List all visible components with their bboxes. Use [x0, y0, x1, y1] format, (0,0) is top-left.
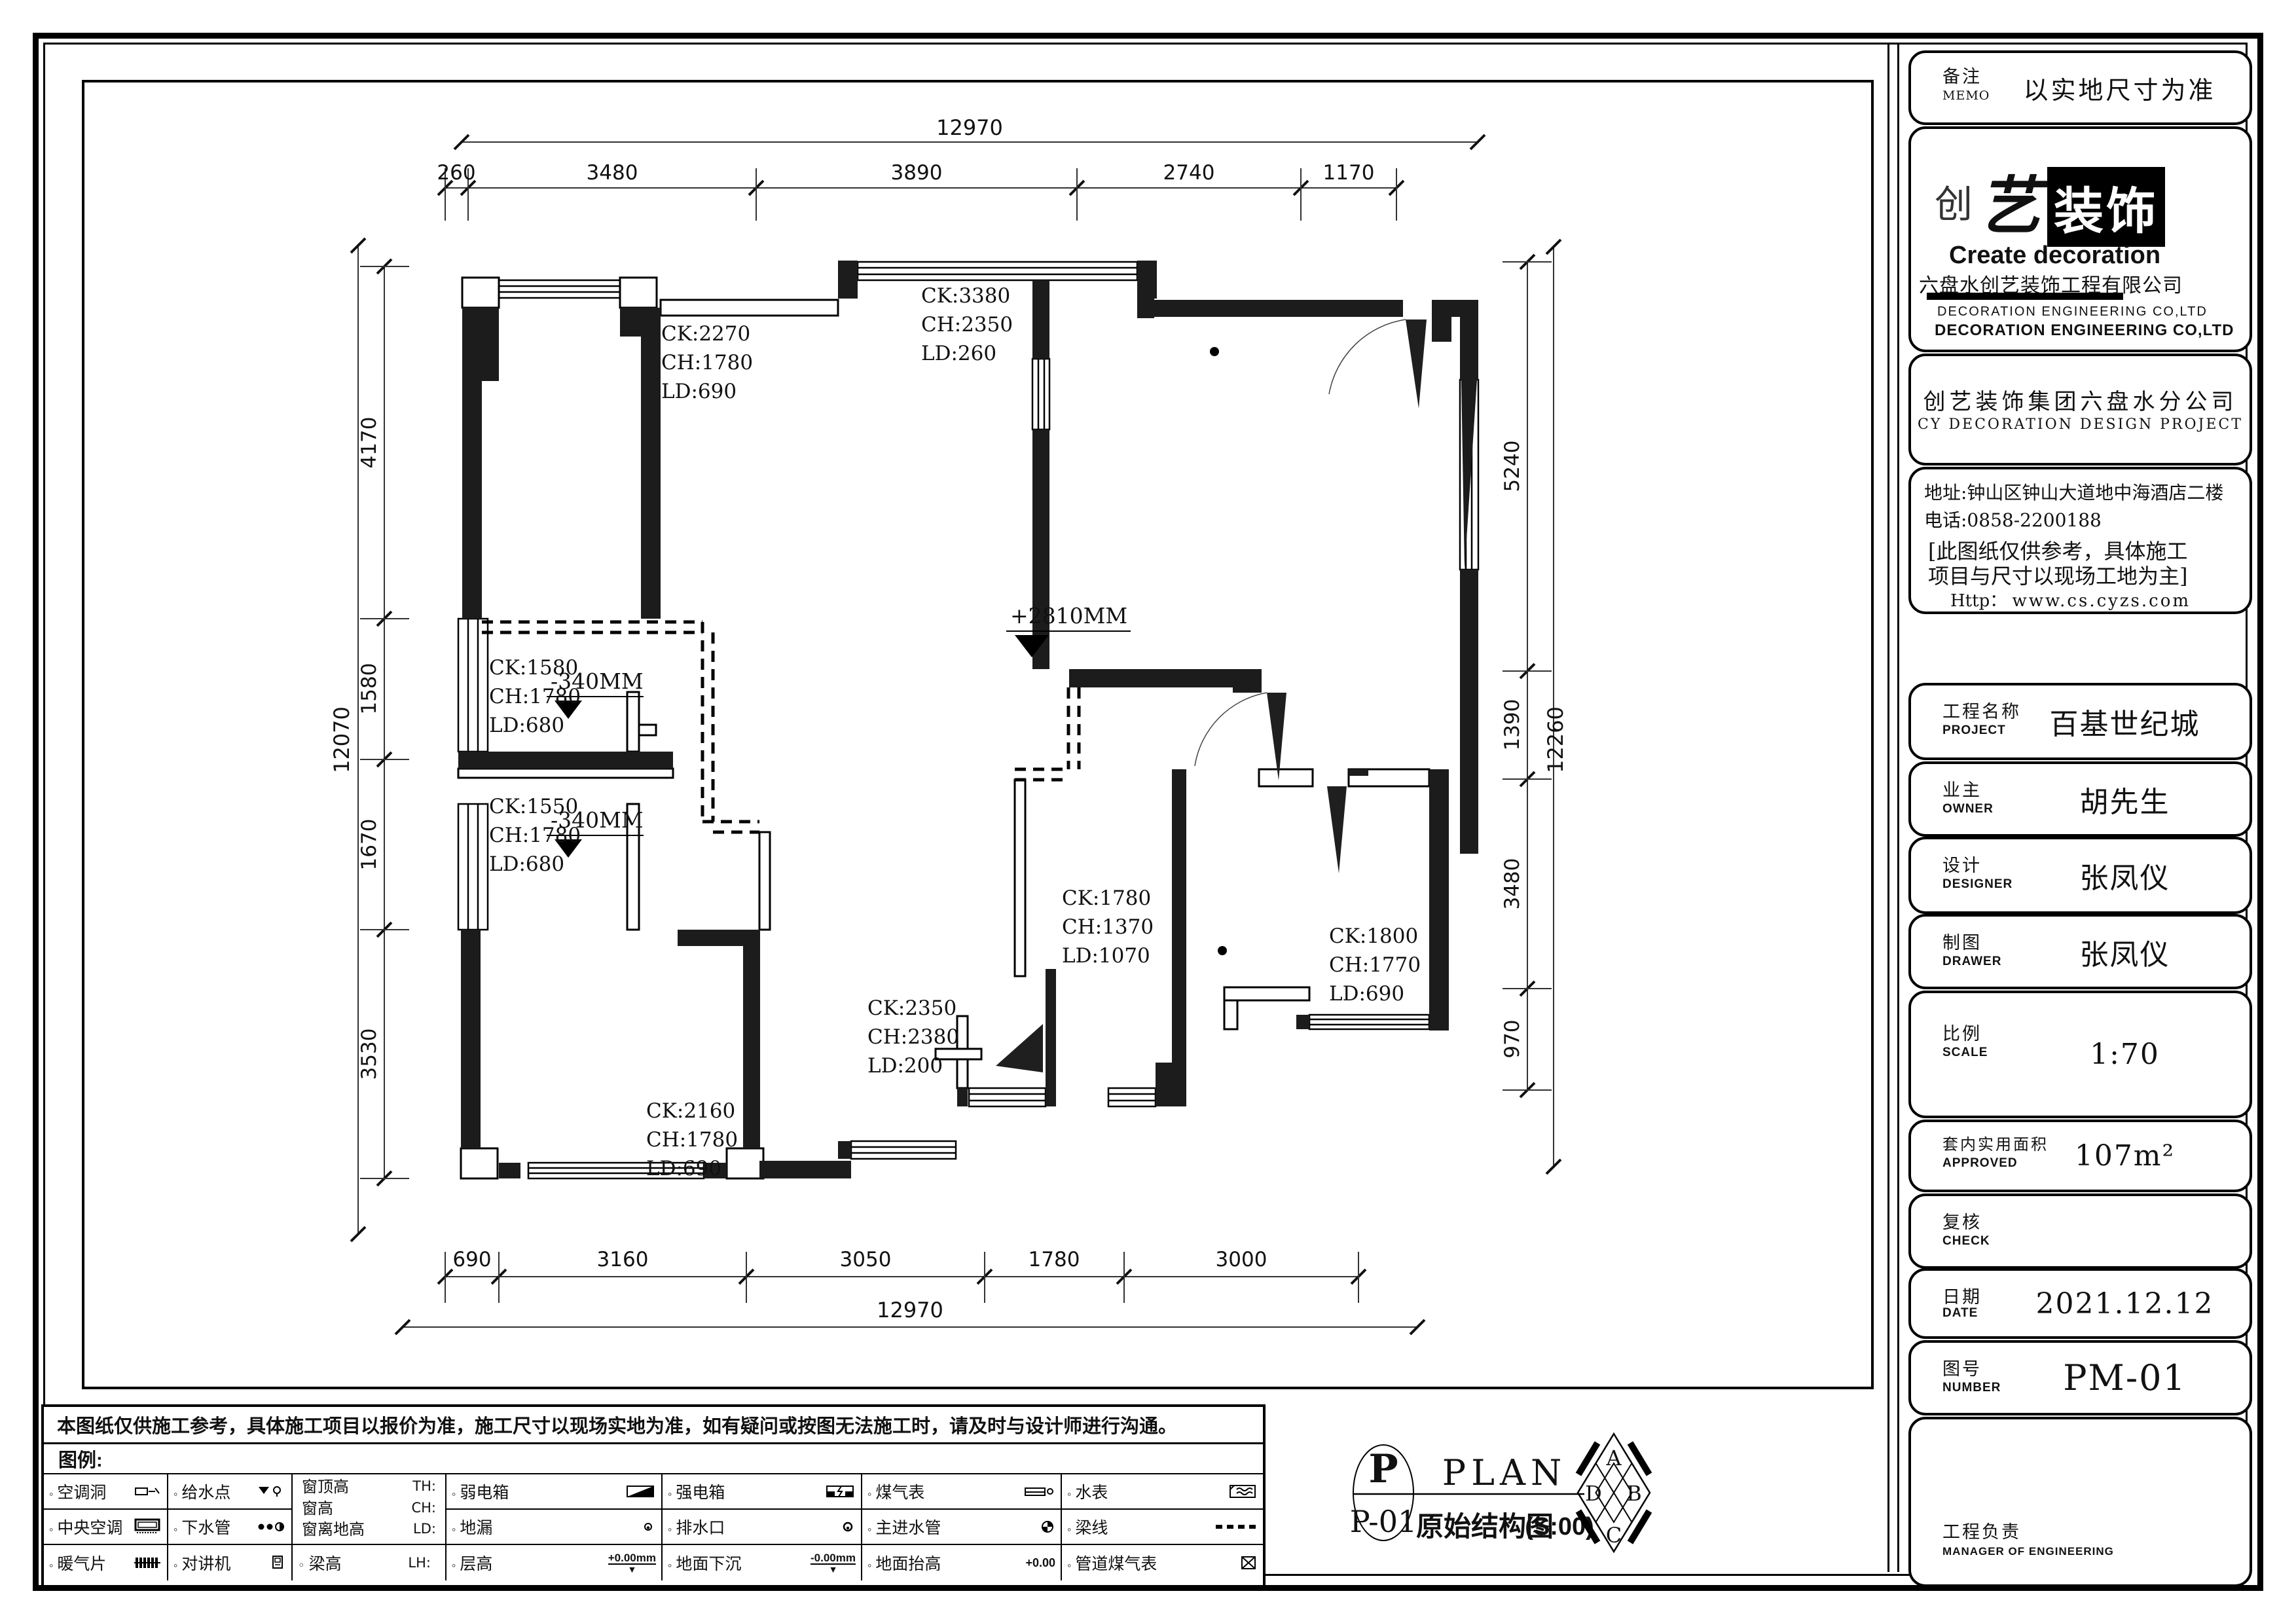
scale-value: 1:70 — [2009, 993, 2240, 1116]
central-ac-icon — [133, 1518, 162, 1535]
field-number: 图号 NUMBER PM-01 — [1908, 1340, 2252, 1415]
legend-item-window-heights: 窗顶高TH: 窗高CH: 窗离地高LD: — [293, 1474, 446, 1545]
svg-text:+2810MM: +2810MM — [1010, 603, 1127, 629]
svg-text:CK:1550: CK:1550 — [489, 795, 578, 818]
dim-bot-seg-2: 3050 — [840, 1248, 892, 1271]
dim-left-total: 12070 — [329, 706, 354, 773]
floor-height-icon: +0.00mm▼ — [608, 1552, 656, 1574]
logo-divider-bar — [1927, 293, 2123, 300]
svg-text:CH:2350: CH:2350 — [921, 313, 1013, 337]
beam-line-icon — [1214, 1522, 1258, 1531]
legend-item-floor-raised: 地面抬高 +0.00 — [862, 1545, 1062, 1580]
legend-item-ac-hole: 空调洞 — [44, 1474, 168, 1510]
level-marker-center: +2810MM — [1006, 603, 1131, 657]
address-line: 地址:钟山区钟山大道地中海酒店二楼 — [1924, 479, 2223, 505]
legend-item-main-water-inlet: 主进水管 — [862, 1510, 1062, 1545]
svg-text:CH:2380: CH:2380 — [867, 1025, 959, 1049]
drain-pipe-icon — [256, 1520, 286, 1534]
svg-text:LD:690: LD:690 — [646, 1157, 721, 1180]
strong-current-box-icon — [826, 1484, 856, 1499]
memo-value: 以实地尺寸为准 — [1996, 53, 2243, 122]
svg-text:CK:1800: CK:1800 — [1329, 924, 1418, 948]
fixture-dots-layer — [1210, 347, 1227, 955]
dim-top-seg-4: 1170 — [1323, 161, 1375, 185]
svg-text:LD:680: LD:680 — [489, 852, 564, 876]
plan-title-en: PLAN — [1442, 1452, 1567, 1493]
floor-raised-icon: +0.00 — [1025, 1556, 1055, 1570]
svg-text:CH:1780: CH:1780 — [489, 824, 581, 847]
owner-value: 胡先生 — [2009, 764, 2240, 834]
website-url: www.cs.cyzs.com — [2012, 591, 2191, 611]
field-check: 复核 CHECK — [1908, 1194, 2252, 1269]
dim-right-seg-3: 970 — [1501, 1019, 1524, 1058]
svg-text:CK:1580: CK:1580 — [489, 656, 578, 680]
svg-text:CK:1780: CK:1780 — [1062, 886, 1151, 910]
check-value — [2009, 1196, 2240, 1266]
dim-top-total: 12970 — [936, 115, 1003, 140]
panel-divider-line-2 — [1897, 43, 1899, 1572]
svg-text:CK:2350: CK:2350 — [867, 996, 957, 1020]
dim-top-seg-3: 2740 — [1163, 161, 1215, 185]
floor-drain-icon — [640, 1520, 656, 1534]
legend-box: 本图纸仅供施工参考，具体施工项目以报价为准，施工尺寸以现场实地为准，如有疑问或按… — [41, 1404, 1266, 1588]
legend-item-beam-line: 梁线 — [1062, 1510, 1263, 1545]
note-line-2: 项目与尺寸以现场工地为主] — [1928, 560, 2188, 590]
window-annotation-2: CK:1580 CH:1780 LD:680 — [489, 656, 581, 737]
disclaimer-text: 本图纸仅供施工参考，具体施工项目以报价为准，施工尺寸以现场实地为准，如有疑问或按… — [44, 1407, 1263, 1444]
pipeline-gas-meter-icon — [1239, 1555, 1258, 1571]
drain-outlet-icon — [840, 1520, 856, 1534]
svg-text:CH:1370: CH:1370 — [1062, 915, 1154, 939]
door-arcs-layer — [1195, 319, 1406, 766]
legend-item-gas-meter: 煤气表 — [862, 1474, 1062, 1510]
dim-bot-seg-4: 3000 — [1216, 1248, 1267, 1271]
field-project: 工程名称 PROJECT 百基世纪城 — [1908, 683, 2252, 760]
plan-ref-letter: P — [1368, 1446, 1398, 1492]
entry-door-leaf — [1406, 319, 1427, 409]
field-drawer: 制图 DRAWER 张凤仪 — [1908, 914, 2252, 989]
bedroom-door-leaf — [1327, 786, 1347, 873]
field-scale: 比例 SCALE 1:70 — [1908, 991, 2252, 1118]
radiator-icon — [133, 1555, 162, 1571]
dim-top-seg-2: 3890 — [891, 161, 943, 185]
svg-text:LD:690: LD:690 — [1329, 982, 1404, 1006]
field-owner: 业主 OWNER 胡先生 — [1908, 761, 2252, 837]
legend-item-weak-current-box: 弱电箱 — [446, 1474, 663, 1510]
window-annotation-5: CK:2350 CH:2380 LD:200 — [867, 996, 959, 1078]
window-annotation-0: CK:2270 CH:1780 LD:690 — [661, 322, 753, 403]
field-date: 日期 DATE 2021.12.12 — [1908, 1268, 2252, 1339]
compass-dir-c: C — [1606, 1523, 1622, 1548]
intercom-icon — [269, 1555, 286, 1571]
svg-text:LD:690: LD:690 — [661, 380, 737, 403]
legend-item-drain-pipe: 下水管 — [168, 1510, 293, 1545]
drain-point-dot-2 — [1218, 946, 1227, 955]
phone-line: 电话:0858-2200188 — [1924, 506, 2102, 532]
svg-text:CK:3380: CK:3380 — [921, 284, 1010, 308]
main-water-inlet-icon — [1040, 1519, 1055, 1535]
svg-text:CH:1780: CH:1780 — [661, 351, 753, 374]
dim-bot-seg-0: 690 — [452, 1248, 491, 1271]
logo-en: Create decoration — [1949, 242, 2160, 270]
dim-left-seg-3: 3530 — [357, 1029, 381, 1080]
memo-label-cn: 备注 — [1942, 62, 1982, 88]
approved-value: 107m² — [2009, 1122, 2240, 1190]
logo-eng-co-light: DECORATION ENGINEERING CO,LTD — [1937, 304, 2208, 319]
dimensions-left — [351, 238, 409, 1241]
svg-text:LD:260: LD:260 — [921, 342, 996, 365]
drawing-sheet: 12970 260 3480 3890 2740 1170 690 3160 3… — [0, 0, 2296, 1623]
logo-box: 创 艺 装饰 Create decoration 六盘水创艺装饰工程有限公司 D… — [1908, 126, 2252, 352]
gas-meter-icon — [1024, 1484, 1055, 1499]
window-annotation-1: CK:3380 CH:2350 LD:260 — [921, 284, 1013, 365]
memo-box: 备注 MEMO 以实地尺寸为准 — [1908, 50, 2252, 125]
bathroom-door-leaf — [996, 1024, 1043, 1072]
legend-item-water-meter: 水表 — [1062, 1474, 1263, 1510]
legend-item-strong-current-box: 强电箱 — [663, 1474, 862, 1510]
dim-top-seg-1: 3480 — [587, 161, 638, 185]
floor-sunken-icon: -0.00mm▼ — [811, 1552, 856, 1574]
logo-eng-co-bold: DECORATION ENGINEERING CO,LTD — [1935, 321, 2234, 340]
dim-left-seg-2: 1670 — [357, 819, 381, 871]
field-approved: 套内实用面积 APPROVED 107m² — [1908, 1120, 2252, 1192]
dim-bot-seg-3: 1780 — [1029, 1248, 1080, 1271]
dim-right-seg-0: 5240 — [1501, 441, 1524, 492]
svg-text:LD:200: LD:200 — [867, 1054, 943, 1078]
dim-right-total: 12260 — [1543, 706, 1568, 773]
memo-label-en: MEMO — [1942, 88, 1990, 103]
dim-left-seg-0: 4170 — [357, 417, 381, 469]
legend-item-pipeline-gas-meter: 管道煤气表 — [1062, 1545, 1263, 1580]
compass-dir-d: D — [1585, 1481, 1602, 1506]
number-value: PM-01 — [2009, 1343, 2240, 1413]
plan-ref-number: P-01 — [1350, 1504, 1417, 1539]
plan-title-block: P P-01 PLAN 原始结构图 (S:00) A B C D — [1329, 1406, 1879, 1590]
legend-item-radiator: 暖气片 — [44, 1545, 168, 1580]
branch-name-cn: 创艺装饰集团六盘水分公司 — [1911, 384, 2250, 416]
legend-grid: 空调洞 给水点 窗顶高TH: 窗高CH: 窗离地高LD: 弱电箱 — [44, 1474, 1263, 1580]
logo-zhuangshi: 装饰 — [2047, 167, 2165, 247]
svg-text:LD:680: LD:680 — [489, 714, 564, 737]
legend-item-water-supply: 给水点 — [168, 1474, 293, 1510]
dim-bot-seg-1: 3160 — [597, 1248, 649, 1271]
contact-box: 地址:钟山区钟山大道地中海酒店二楼 电话:0858-2200188 [此图纸仅供… — [1908, 467, 2252, 614]
dim-bottom-total: 12970 — [877, 1298, 943, 1322]
window-annotation-7: CK:1800 CH:1770 LD:690 — [1329, 924, 1421, 1006]
window-annotation-3: CK:1550 CH:1780 LD:680 — [489, 795, 581, 876]
svg-text:CH:1770: CH:1770 — [1329, 953, 1421, 977]
legend-item-beam-height: 梁高 LH: — [293, 1545, 446, 1580]
svg-text:CK:2270: CK:2270 — [661, 322, 750, 346]
dim-top-seg-0: 260 — [437, 161, 475, 185]
svg-text:LD:1070: LD:1070 — [1062, 944, 1150, 968]
ac-hole-icon — [134, 1484, 162, 1499]
logo-chuang: 创 — [1935, 173, 1973, 228]
branch-name-en: CY DECORATION DESIGN PROJECT — [1911, 416, 2250, 433]
dim-right-seg-2: 3480 — [1501, 858, 1524, 910]
designer-value: 张凤仪 — [2009, 839, 2240, 911]
legend-item-drain-outlet: 排水口 — [663, 1510, 862, 1545]
dim-left-seg-1: 1580 — [357, 663, 381, 715]
project-value: 百基世纪城 — [2009, 685, 2240, 757]
date-value: 2021.12.12 — [2009, 1271, 2240, 1336]
dim-right-seg-1: 1390 — [1501, 699, 1524, 751]
svg-text:CK:2160: CK:2160 — [646, 1099, 735, 1123]
field-designer: 设计 DESIGNER 张凤仪 — [1908, 837, 2252, 914]
water-meter-icon — [1228, 1484, 1258, 1499]
compass-dir-a: A — [1605, 1446, 1622, 1470]
panel-divider-line — [1887, 43, 1889, 1572]
svg-text:CH:1780: CH:1780 — [646, 1128, 738, 1152]
website-line: Http： www.cs.cyzs.com — [1950, 587, 2191, 611]
floor-plan-svg: 12970 260 3480 3890 2740 1170 690 3160 3… — [82, 80, 1874, 1389]
legend-title: 图例: — [44, 1444, 1263, 1474]
drain-point-dot — [1210, 347, 1219, 356]
logo-yi: 艺 — [1978, 155, 2041, 246]
legend-item-floor-sunken: 地面下沉 -0.00mm▼ — [663, 1545, 862, 1580]
legend-item-floor-height: 层高 +0.00mm▼ — [446, 1545, 663, 1580]
window-annotation-6: CK:1780 CH:1370 LD:1070 — [1062, 886, 1154, 968]
legend-item-intercom: 对讲机 — [168, 1545, 293, 1580]
branch-box: 创艺装饰集团六盘水分公司 CY DECORATION DESIGN PROJEC… — [1908, 354, 2252, 465]
svg-text:CH:1780: CH:1780 — [489, 685, 581, 708]
legend-item-floor-drain: 地漏 — [446, 1510, 663, 1545]
kitchen-door-leaf — [1267, 693, 1286, 780]
weak-current-box-icon — [626, 1484, 656, 1499]
drawer-value: 张凤仪 — [2009, 917, 2240, 987]
legend-item-central-ac: 中央空调 — [44, 1510, 168, 1545]
field-manager: 工程负责 MANAGER OF ENGINEERING — [1908, 1417, 2252, 1587]
water-supply-icon — [257, 1484, 286, 1499]
compass-dir-b: B — [1626, 1481, 1642, 1506]
